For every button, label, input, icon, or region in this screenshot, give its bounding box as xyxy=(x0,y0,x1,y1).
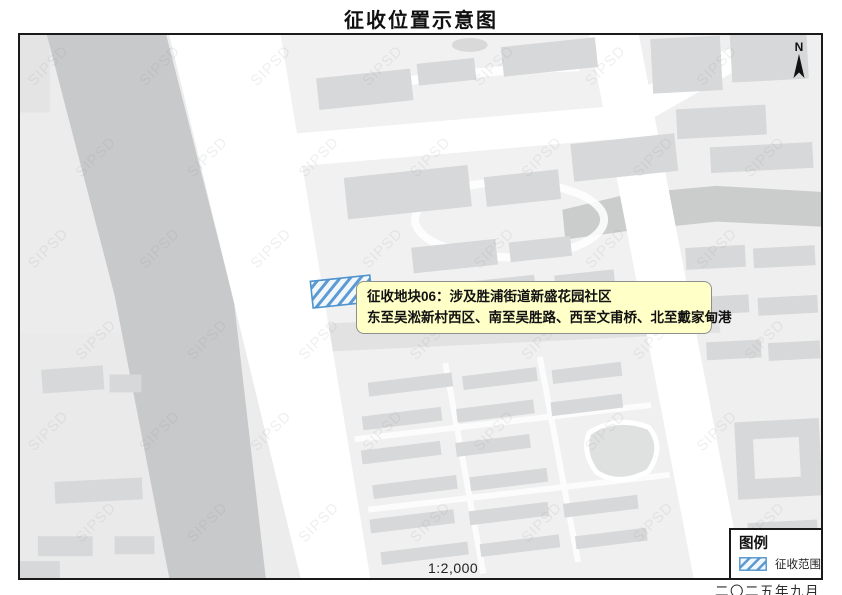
callout-line1: 征收地块06：涉及胜浦街道新盛花园社区 xyxy=(367,286,701,307)
courtyard-inner xyxy=(753,437,801,479)
callout-line2: 东至吴淞新村西区、南至吴胜路、西至文甫桥、北至戴家甸港 xyxy=(367,307,701,328)
parcel-callout: 征收地块06：涉及胜浦街道新盛花园社区 东至吴淞新村西区、南至吴胜路、西至文甫桥… xyxy=(356,281,712,334)
page-title: 征收位置示意图 xyxy=(0,4,842,33)
legend-item-label: 征收范围 xyxy=(775,556,821,572)
scale-text: 1:2,000 xyxy=(428,560,478,576)
north-arrow: N xyxy=(786,41,812,86)
north-label: N xyxy=(786,41,812,53)
map-frame: SIPSDSIPSDSIPSDSIPSDSIPSDSIPSDSIPSDSIPSD… xyxy=(18,33,823,580)
page: 征收位置示意图 xyxy=(0,0,842,595)
legend-box: 图例 征收范围 xyxy=(729,528,821,578)
map-date: 二〇二五年九月 xyxy=(715,580,820,595)
legend-swatch-hatch-icon xyxy=(739,557,767,571)
pond-north xyxy=(452,38,488,52)
north-arrow-icon xyxy=(790,53,808,81)
legend-title: 图例 xyxy=(739,532,821,553)
legend-item: 征收范围 xyxy=(739,556,821,572)
